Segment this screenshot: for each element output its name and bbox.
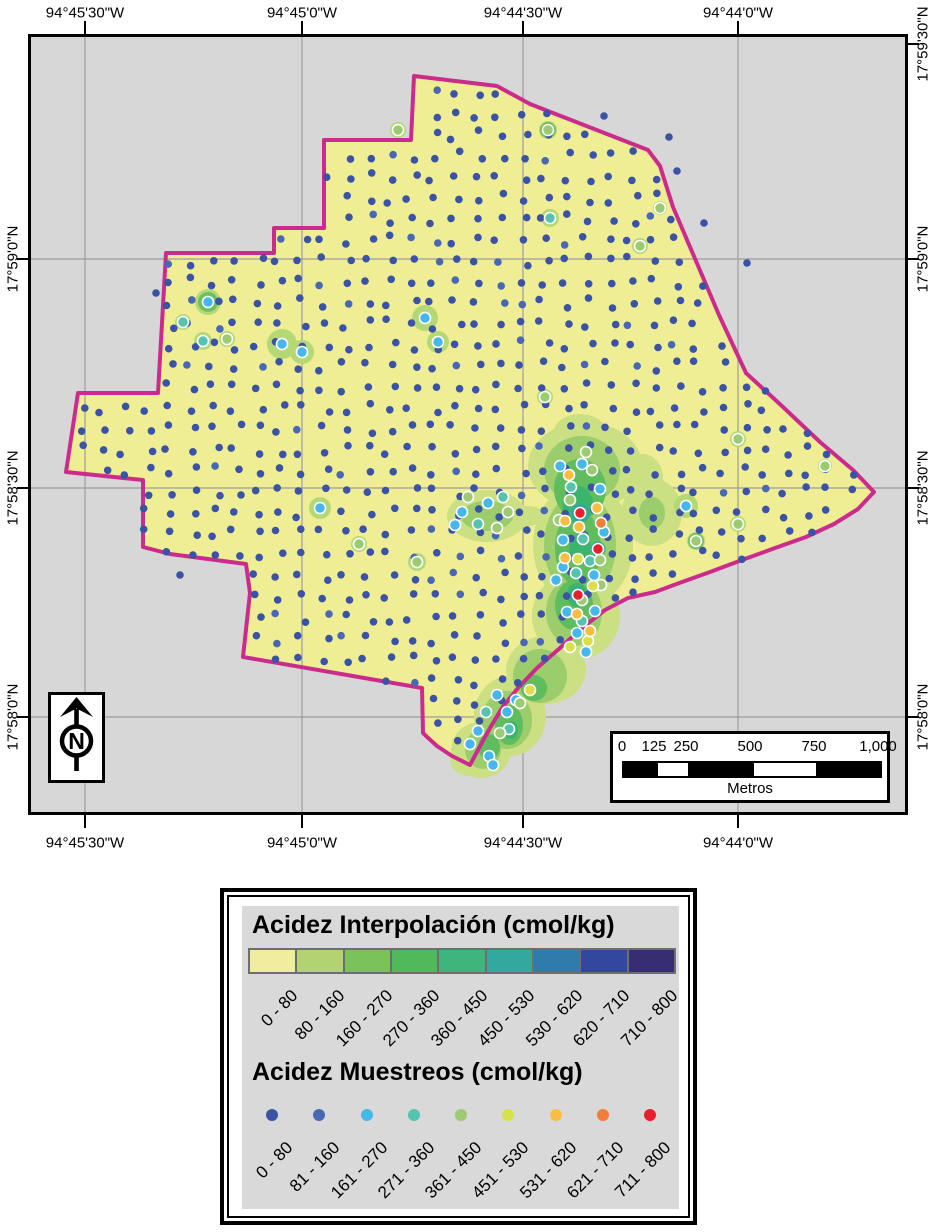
scale-bar-segments <box>622 761 882 778</box>
scale-number: 125 <box>641 738 666 755</box>
legend-ramp-cell <box>250 950 295 972</box>
legend-sample-dot <box>361 1109 373 1121</box>
legend-ramp-cell <box>390 950 437 972</box>
legend-sample-dot <box>502 1109 514 1121</box>
axis-tick-bottom <box>522 815 524 828</box>
legend-ramp-cell <box>579 950 626 972</box>
scale-number: 1,000 <box>859 738 897 755</box>
legend-ramp-cell <box>627 950 674 972</box>
scale-segment <box>752 763 816 776</box>
legend-title-samples: Acidez Muestreos (cmol/kg) <box>252 1058 583 1087</box>
scale-number: 750 <box>801 738 826 755</box>
map-canvas <box>31 37 905 812</box>
legend-sample-dot <box>313 1109 325 1121</box>
legend: Acidez Interpolación (cmol/kg) 0 - 8080 … <box>220 888 697 1225</box>
legend-sample-dot <box>597 1109 609 1121</box>
north-arrow-icon: N <box>51 695 102 780</box>
axis-tick-right <box>908 43 919 45</box>
north-letter: N <box>68 728 85 754</box>
north-arrow: N <box>48 692 105 783</box>
axis-label-top: 94°45'30"W <box>46 5 124 22</box>
axis-tick-left <box>17 258 28 260</box>
axis-tick-bottom <box>301 815 303 828</box>
axis-label-bottom: 94°44'0"W <box>703 835 773 852</box>
legend-ramp-cell <box>437 950 484 972</box>
legend-sample-dot <box>550 1109 562 1121</box>
axis-tick-bottom <box>84 815 86 828</box>
legend-ramp-cell <box>343 950 390 972</box>
scale-segment <box>688 763 752 776</box>
axis-tick-left <box>17 487 28 489</box>
scale-bar: 01252505007501,000 Metros <box>610 731 890 803</box>
axis-tick-right <box>908 258 919 260</box>
legend-panel: Acidez Interpolación (cmol/kg) 0 - 8080 … <box>242 906 679 1209</box>
legend-sample-dot <box>644 1109 656 1121</box>
axis-label-top: 94°44'30"W <box>484 5 562 22</box>
axis-tick-top <box>737 21 739 34</box>
scale-segment <box>656 763 688 776</box>
axis-tick-top <box>522 21 524 34</box>
axis-label-top: 94°45'0"W <box>267 5 337 22</box>
legend-ramp-cell <box>532 950 579 972</box>
axis-tick-right <box>908 716 919 718</box>
scale-segment <box>624 763 656 776</box>
map-layout-page: 94°45'30"W94°45'0"W94°44'30"W94°44'0"W94… <box>0 0 939 1232</box>
legend-sample-dot <box>408 1109 420 1121</box>
axis-label-bottom: 94°44'30"W <box>484 835 562 852</box>
legend-title-interpolation: Acidez Interpolación (cmol/kg) <box>252 911 615 940</box>
axis-label-top: 94°44'0"W <box>703 5 773 22</box>
axis-tick-right <box>908 487 919 489</box>
scale-number: 0 <box>618 738 626 755</box>
axis-tick-bottom <box>737 815 739 828</box>
axis-label-bottom: 94°45'30"W <box>46 835 124 852</box>
legend-ramp-cell <box>295 950 342 972</box>
scale-number: 250 <box>673 738 698 755</box>
map-frame <box>28 34 908 815</box>
axis-label-bottom: 94°45'0"W <box>267 835 337 852</box>
legend-color-ramp <box>248 948 676 974</box>
axis-tick-top <box>301 21 303 34</box>
scale-segment <box>816 763 880 776</box>
legend-ramp-cell <box>485 950 532 972</box>
scale-number: 500 <box>737 738 762 755</box>
axis-tick-left <box>17 716 28 718</box>
legend-sample-dot <box>266 1109 278 1121</box>
scale-bar-unit: Metros <box>613 780 887 797</box>
legend-sample-dot <box>455 1109 467 1121</box>
axis-tick-top <box>84 21 86 34</box>
